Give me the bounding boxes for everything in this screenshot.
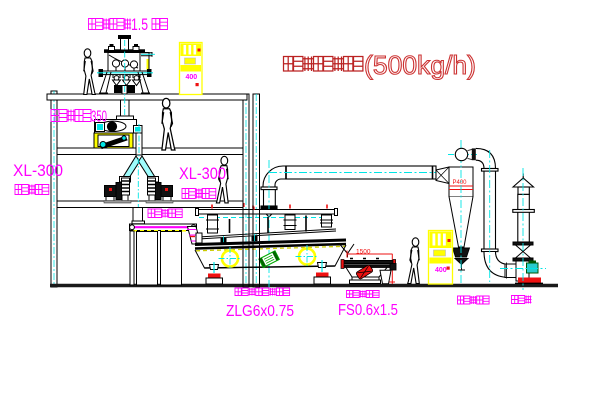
svg-text:400: 400: [435, 267, 447, 274]
svg-text:P400: P400: [453, 180, 468, 186]
svg-text:FS0.6x1.5: FS0.6x1.5: [338, 302, 398, 319]
svg-text:400: 400: [186, 74, 198, 81]
svg-text:1500: 1500: [356, 249, 371, 256]
svg-text:1.5: 1.5: [131, 15, 148, 34]
svg-text:ZLG6x0.75: ZLG6x0.75: [226, 303, 294, 320]
svg-text:XL-300: XL-300: [179, 164, 226, 183]
svg-text:350: 350: [91, 109, 107, 126]
svg-text:XL-300: XL-300: [13, 161, 63, 180]
svg-text:(500kg/h): (500kg/h): [364, 50, 476, 80]
